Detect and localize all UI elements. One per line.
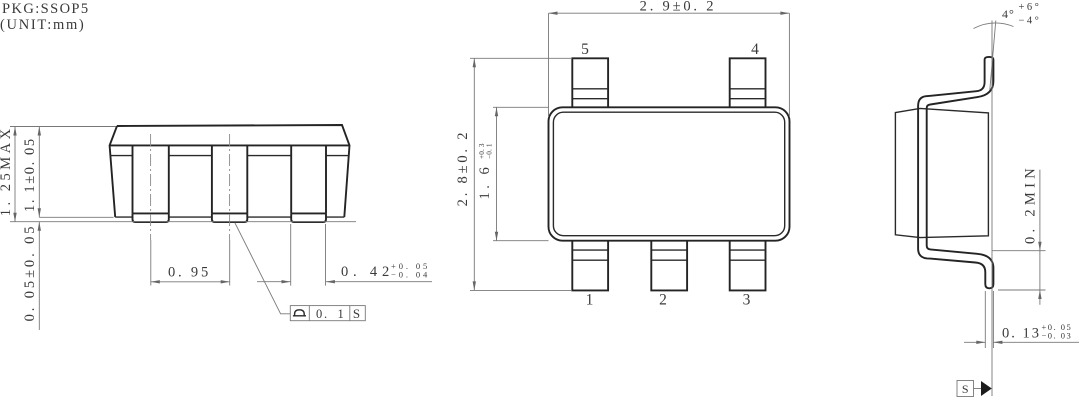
svg-text:3: 3	[743, 292, 751, 309]
svg-text:−0. 1: −0. 1	[486, 143, 494, 159]
svg-text:1: 1	[338, 307, 344, 321]
svg-text:−0. 03: −0. 03	[1042, 330, 1073, 340]
svg-text:.: .	[324, 307, 327, 321]
svg-text:0. 05±0. 05: 0. 05±0. 05	[22, 224, 38, 322]
svg-text:4: 4	[751, 41, 759, 58]
svg-text:−0. 04: −0. 04	[391, 270, 430, 280]
svg-text:−4°: −4°	[1019, 15, 1042, 26]
svg-text:S: S	[353, 306, 360, 321]
svg-text:5: 5	[581, 41, 589, 58]
svg-text:4°: 4°	[1002, 7, 1015, 21]
svg-text:1: 1	[586, 292, 594, 309]
svg-text:2: 2	[659, 292, 667, 309]
svg-text:0. 95: 0. 95	[168, 265, 211, 281]
svg-text:+6°: +6°	[1019, 2, 1042, 13]
svg-text:S: S	[962, 382, 969, 396]
svg-text:2. 8±0. 2: 2. 8±0. 2	[455, 130, 471, 207]
svg-text:1. 1±0. 05: 1. 1±0. 05	[22, 137, 38, 212]
svg-text:1. 25MAX: 1. 25MAX	[0, 125, 14, 216]
svg-text:(UNIT:mm): (UNIT:mm)	[0, 17, 85, 33]
svg-text:2. 9±0. 2: 2. 9±0. 2	[640, 0, 717, 15]
svg-text:0. 2MIN: 0. 2MIN	[1023, 164, 1039, 244]
svg-text:PKG:SSOP5: PKG:SSOP5	[2, 1, 90, 17]
svg-text:1. 6: 1. 6	[477, 164, 493, 200]
svg-text:0. 42: 0. 42	[341, 264, 394, 280]
svg-text:0: 0	[316, 307, 322, 321]
svg-text:0. 13: 0. 13	[1002, 325, 1041, 341]
